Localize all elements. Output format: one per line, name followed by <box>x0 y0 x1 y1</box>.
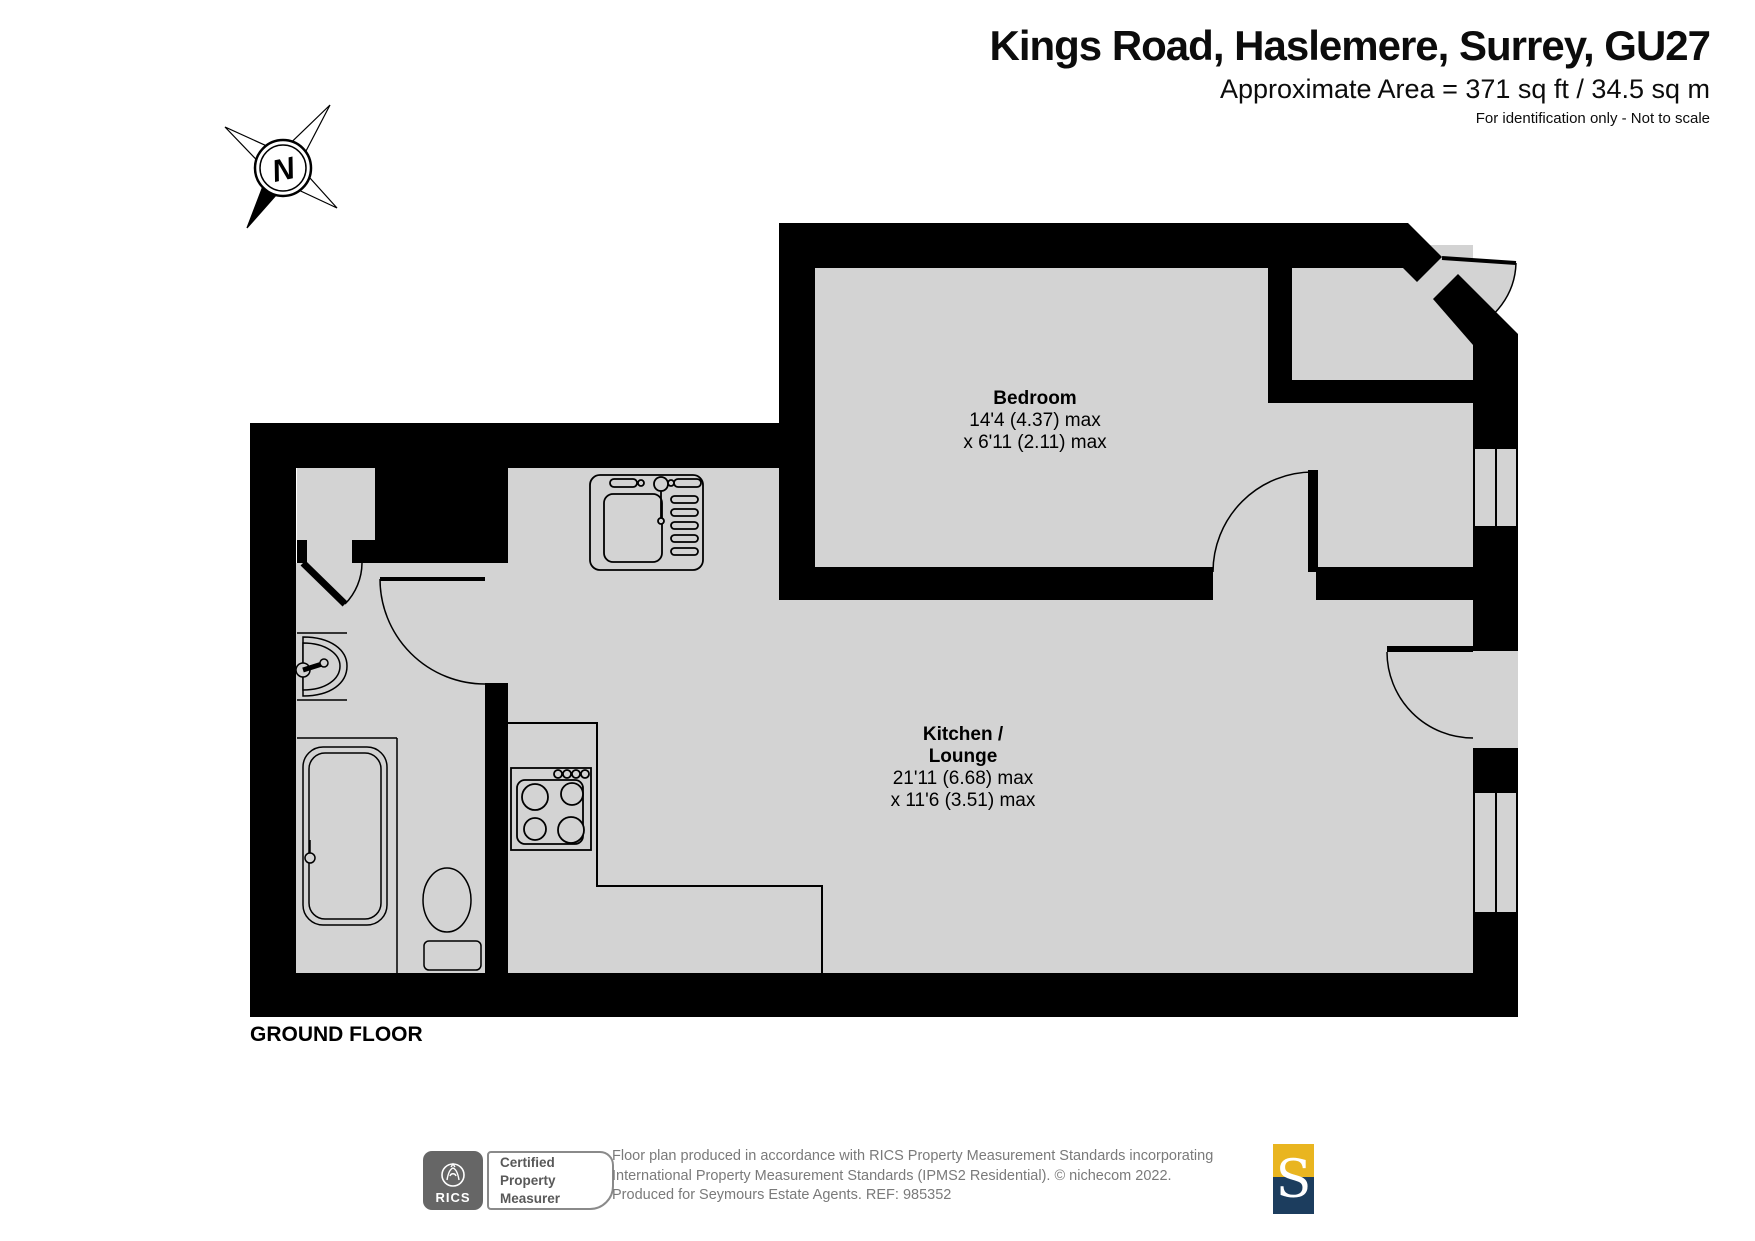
kitchen-dim-2: x 11'6 (3.51) max <box>891 790 1036 811</box>
compass-icon: N <box>225 105 337 228</box>
seymours-logo: S <box>1273 1144 1314 1214</box>
rics-logo: RICS <box>423 1151 483 1210</box>
certified-line-1: Certified <box>500 1154 612 1172</box>
bedroom-dim-1: 14'4 (4.37) max <box>969 410 1101 431</box>
floor-areas <box>296 245 1518 973</box>
hob-icon <box>511 768 591 850</box>
kitchen-dim-1: 21'11 (6.68) max <box>893 768 1034 789</box>
disclaimer-line-3: Produced for Seymours Estate Agents. REF… <box>612 1186 1213 1206</box>
certified-line-3: Measurer <box>500 1190 612 1208</box>
footer-disclaimer: Floor plan produced in accordance with R… <box>612 1147 1213 1206</box>
certified-property-measurer-badge: Certified Property Measurer <box>487 1151 614 1210</box>
bedroom-name: Bedroom <box>993 388 1076 409</box>
bedroom-dim-2: x 6'11 (2.11) max <box>963 432 1107 453</box>
disclaimer-line-1: Floor plan produced in accordance with R… <box>612 1147 1213 1167</box>
floorplan-drawing: N Bedroom 14'4 (4.37) max x 6'11 (2.11) … <box>0 0 1755 1241</box>
seymours-logo-letter: S <box>1273 1150 1314 1210</box>
window-right-upper <box>1474 448 1517 527</box>
floor-label: GROUND FLOOR <box>250 1023 423 1046</box>
window-right-lower <box>1474 792 1517 913</box>
rics-brand-text: RICS <box>435 1190 470 1205</box>
floorplan-page: Kings Road, Haslemere, Surrey, GU27 Appr… <box>0 0 1755 1241</box>
kitchen-sink-icon <box>590 475 703 570</box>
kitchen-name-2: Lounge <box>929 746 998 767</box>
disclaimer-line-2: International Property Measurement Stand… <box>612 1167 1213 1187</box>
certified-line-2: Property <box>500 1172 612 1190</box>
kitchen-name-1: Kitchen / <box>923 724 1004 745</box>
rics-lion-icon <box>438 1160 468 1190</box>
